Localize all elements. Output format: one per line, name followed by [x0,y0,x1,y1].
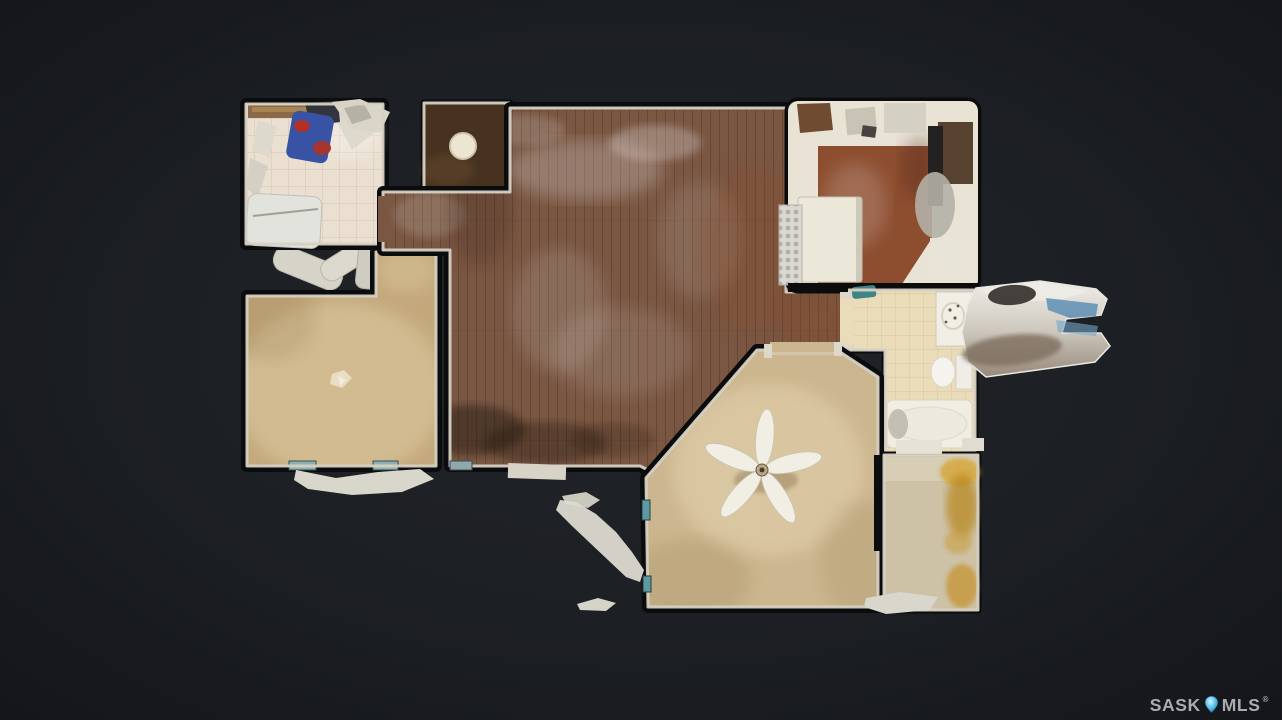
brand-sask: SASK [1150,695,1201,716]
bathroom-doorway [840,298,854,344]
door-hinge-mark [643,576,651,592]
curtain-artifact [294,469,434,495]
brand-mls: MLS [1222,695,1261,716]
room-kitchen [779,101,978,292]
floorplan-viewer: SASK MLS ® [0,0,1282,720]
sink-cabinet [915,172,955,238]
chest-freezer [246,193,323,249]
floorplan-image [0,0,1282,720]
refrigerator [938,122,973,184]
baseboard-artifact [508,463,566,480]
scan-streaks [556,492,644,611]
upper-cabinet [797,103,833,133]
toy-cluster [285,110,335,165]
door-hinge-mark [642,500,650,520]
room-laundry [246,99,390,249]
bedroom-doorway [770,342,834,358]
laundry-doorway [378,196,388,242]
small-streak [577,598,616,611]
room-bedroom-right [864,438,984,614]
kitchen-island [798,197,862,282]
registered-mark: ® [1263,695,1270,704]
sask-mls-logo: SASK MLS ® [1150,695,1270,716]
wall-streak [556,500,644,582]
stairwell-artifact [961,281,1110,377]
toilet [931,357,955,387]
teal-item [851,285,876,299]
room-entry [422,103,510,187]
door-sill [450,461,472,470]
map-pin-icon [1205,696,1218,713]
